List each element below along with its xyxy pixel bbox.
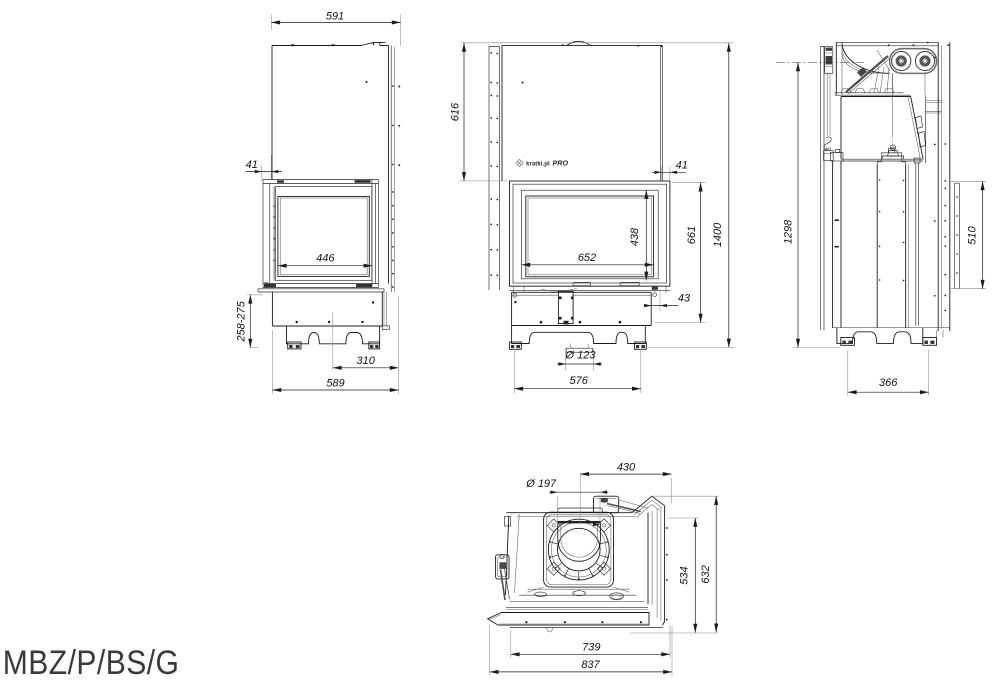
svg-text:430: 430 bbox=[617, 461, 636, 473]
svg-text:739: 739 bbox=[582, 641, 600, 653]
svg-text:616: 616 bbox=[450, 102, 462, 121]
svg-text:PRO: PRO bbox=[553, 159, 569, 168]
svg-text:652: 652 bbox=[578, 252, 596, 264]
svg-text:534: 534 bbox=[679, 566, 691, 584]
svg-text:1400: 1400 bbox=[712, 222, 724, 247]
svg-text:1298: 1298 bbox=[783, 219, 795, 244]
svg-text:Ø 197: Ø 197 bbox=[525, 478, 557, 490]
svg-text:591: 591 bbox=[326, 11, 344, 23]
svg-text:258-275: 258-275 bbox=[236, 300, 248, 342]
svg-text:41: 41 bbox=[246, 159, 258, 171]
svg-text:43: 43 bbox=[678, 293, 691, 305]
svg-text:837: 837 bbox=[581, 659, 600, 671]
svg-text:589: 589 bbox=[326, 377, 344, 389]
svg-text:310: 310 bbox=[357, 355, 376, 367]
svg-text:632: 632 bbox=[700, 565, 712, 583]
svg-text:Ø 123: Ø 123 bbox=[565, 350, 597, 362]
svg-text:661: 661 bbox=[686, 226, 698, 244]
svg-text:438: 438 bbox=[629, 227, 641, 246]
svg-text:446: 446 bbox=[316, 253, 335, 265]
svg-text:366: 366 bbox=[879, 377, 898, 389]
svg-text:41: 41 bbox=[676, 160, 688, 172]
svg-text:510: 510 bbox=[966, 225, 978, 244]
svg-text:576: 576 bbox=[570, 375, 589, 387]
svg-text:kratki.pl: kratki.pl bbox=[526, 161, 550, 168]
svg-text:MBZ/P/BS/G: MBZ/P/BS/G bbox=[3, 643, 180, 681]
